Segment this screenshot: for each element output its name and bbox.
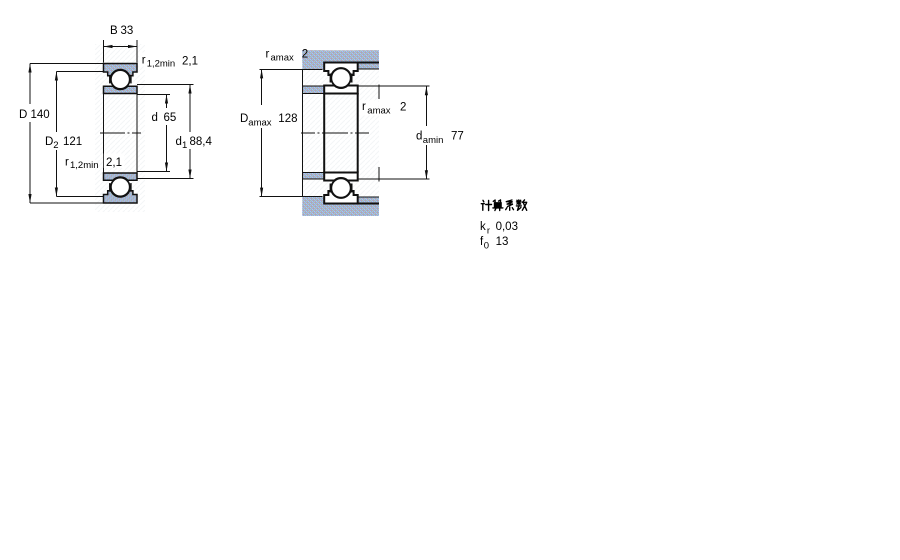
svg-text:1,2min: 1,2min	[70, 160, 99, 171]
svg-text:B: B	[110, 25, 118, 37]
svg-text:k: k	[480, 221, 486, 233]
svg-text:2: 2	[302, 49, 308, 61]
svg-text:r: r	[142, 55, 146, 67]
svg-text:2,1: 2,1	[106, 157, 122, 169]
svg-text:r: r	[65, 157, 69, 169]
svg-text:1: 1	[182, 140, 187, 151]
svg-text:amin: amin	[423, 135, 444, 146]
svg-text:88,4: 88,4	[190, 136, 213, 148]
svg-text:0,03: 0,03	[496, 221, 518, 233]
svg-text:D: D	[240, 113, 248, 125]
svg-text:r: r	[487, 225, 490, 236]
svg-text:amax: amax	[271, 53, 294, 64]
svg-text:d: d	[416, 131, 422, 143]
svg-text:D: D	[19, 109, 27, 121]
svg-text:r: r	[362, 101, 366, 113]
svg-text:d: d	[176, 136, 182, 148]
svg-text:2,1: 2,1	[182, 56, 198, 68]
svg-text:2: 2	[53, 140, 58, 151]
svg-text:d: d	[152, 112, 158, 124]
svg-text:140: 140	[31, 109, 50, 121]
svg-text:65: 65	[164, 112, 177, 124]
svg-text:33: 33	[121, 25, 134, 37]
svg-text:0: 0	[484, 241, 489, 252]
svg-text:r: r	[266, 49, 270, 61]
svg-text:128: 128	[278, 113, 297, 125]
svg-text:amax: amax	[248, 118, 271, 129]
svg-text:D: D	[45, 136, 53, 148]
svg-text:2: 2	[400, 102, 406, 114]
svg-text:1,2min: 1,2min	[147, 58, 176, 69]
svg-text:77: 77	[451, 131, 464, 143]
svg-text:amax: amax	[367, 106, 390, 117]
svg-text:121: 121	[63, 136, 82, 148]
svg-text:13: 13	[496, 236, 509, 248]
